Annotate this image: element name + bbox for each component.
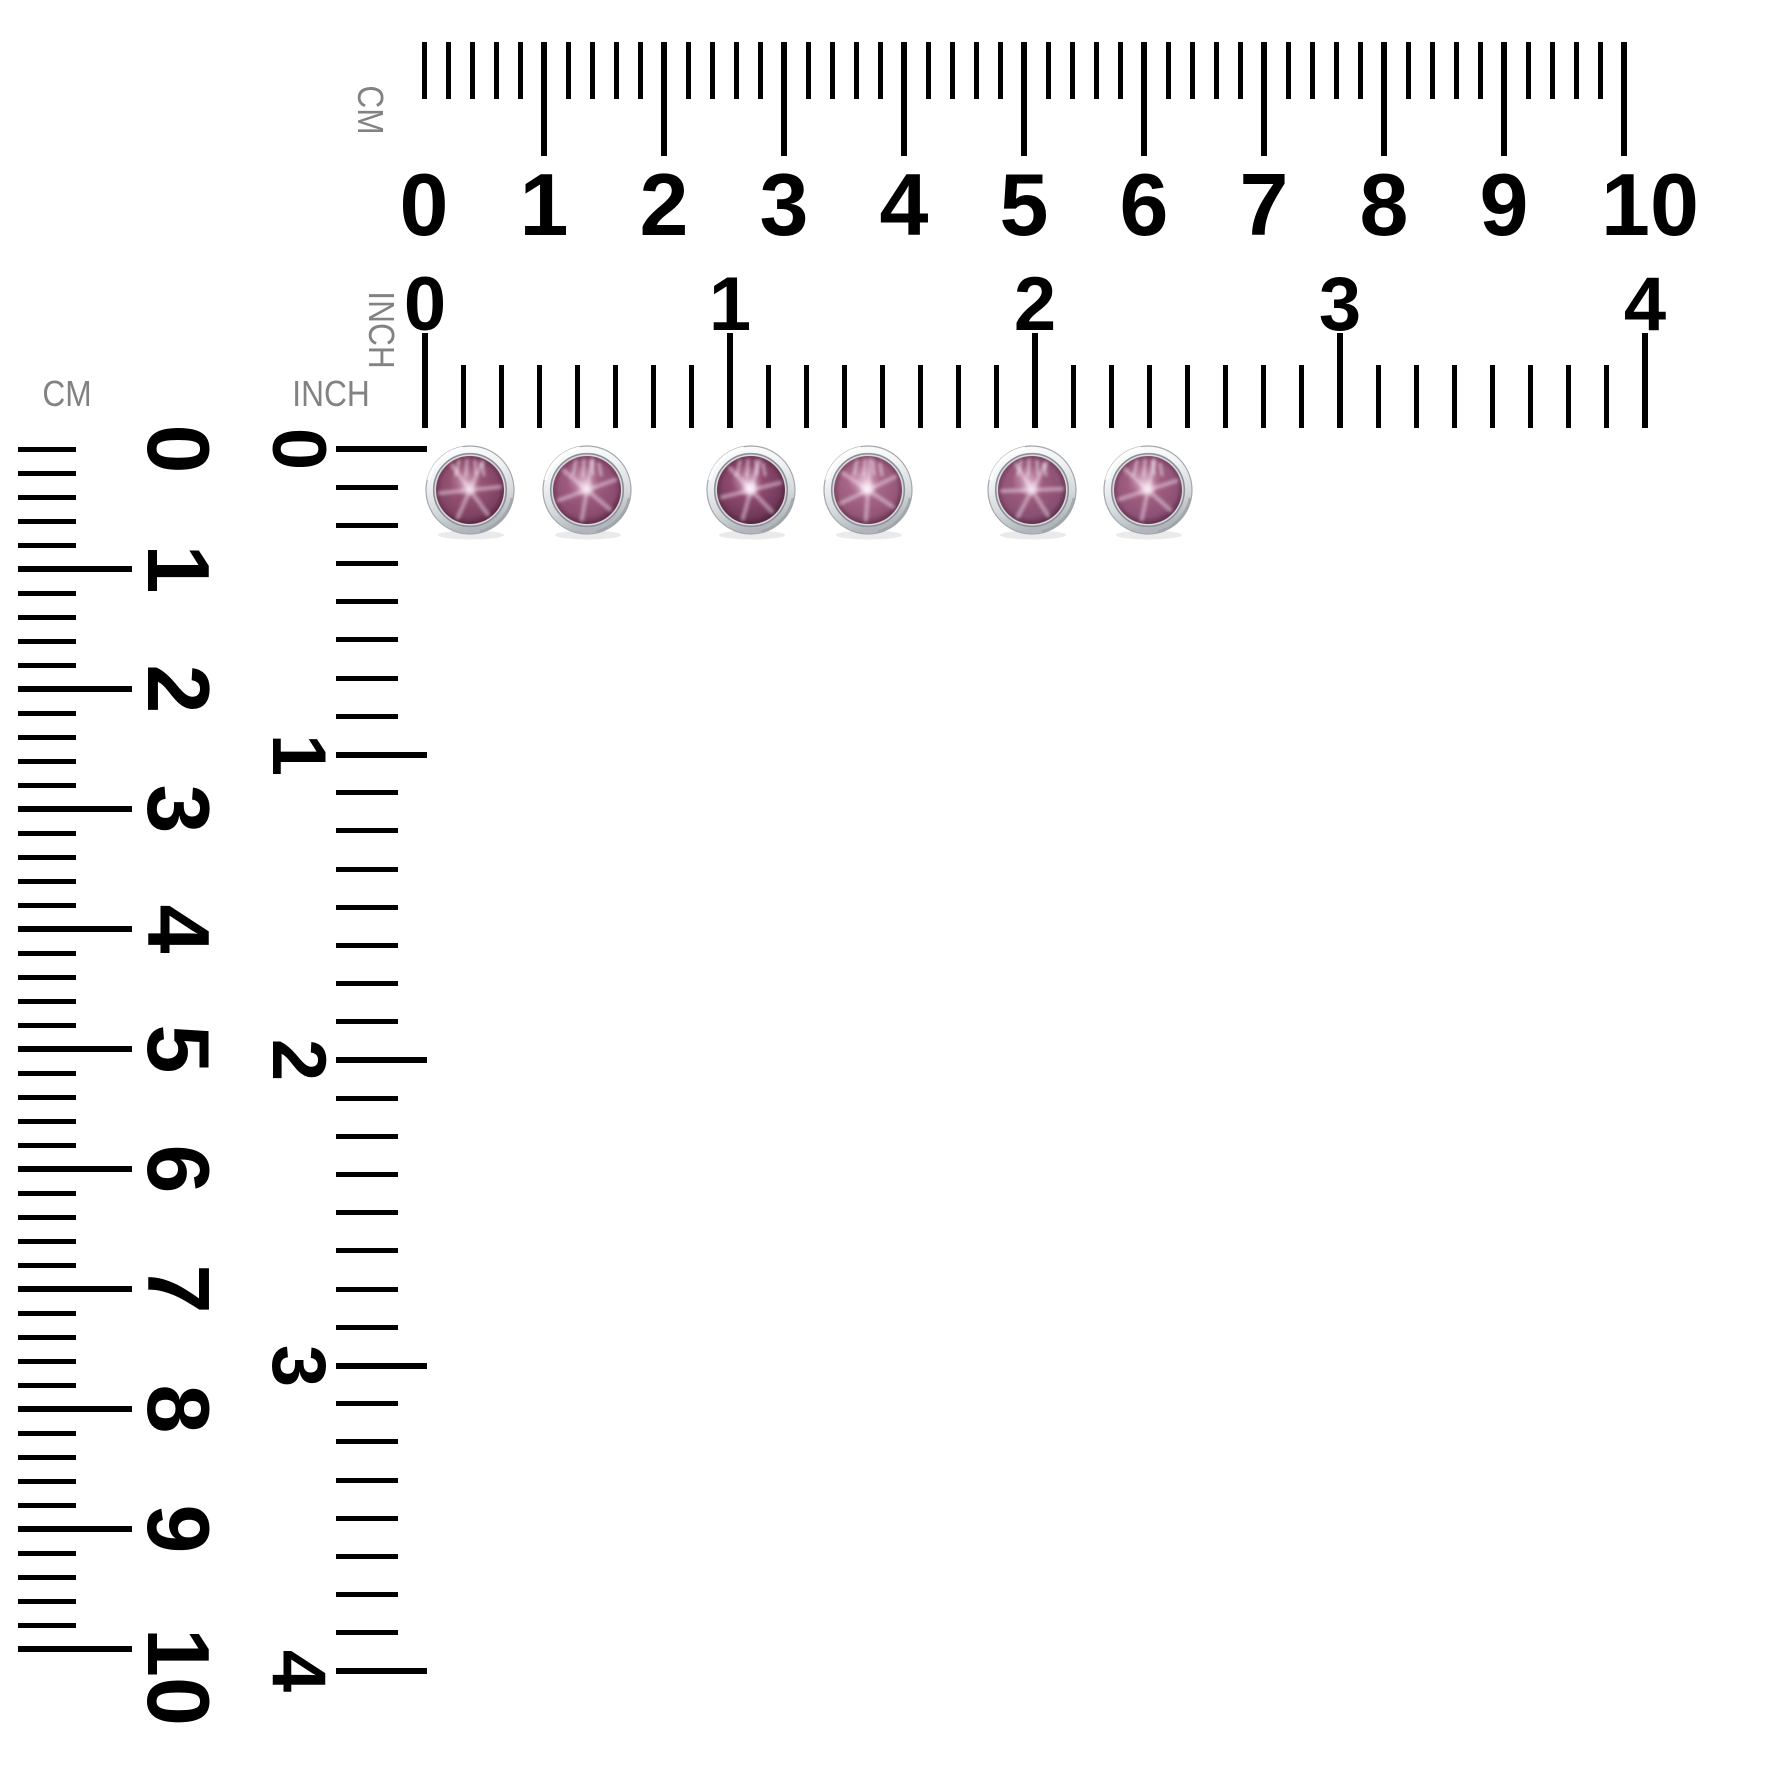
top-cm-number: 7: [1240, 161, 1289, 249]
left-inch-number: 1: [260, 733, 336, 775]
top-inch-major-tick: [1337, 333, 1343, 428]
top-cm-number: 9: [1480, 161, 1529, 249]
left-inch-minor-tick: [336, 1630, 398, 1635]
top-inch-minor-tick: [1566, 365, 1571, 428]
left-inch-minor-tick: [336, 599, 398, 604]
left-inch-major-tick: [336, 1668, 427, 1674]
top-inch-major-tick: [422, 333, 428, 428]
star-center-glow: [463, 482, 476, 495]
top-cm-minor-tick: [1166, 42, 1171, 99]
top-inch-number: 4: [1624, 267, 1666, 343]
top-inch-minor-tick: [613, 365, 618, 428]
left-cm-minor-tick: [18, 1215, 76, 1220]
earring-stud: [982, 440, 1082, 540]
top-cm-number: 3: [760, 161, 809, 249]
top-inch-number: 2: [1014, 267, 1056, 343]
top-inch-number: 1: [709, 267, 751, 343]
top-cm-minor-tick: [1334, 42, 1339, 99]
top-inch-minor-tick: [766, 365, 771, 428]
top-cm-minor-tick: [1070, 42, 1075, 99]
top-cm-number: 5: [1000, 161, 1049, 249]
left-cm-minor-tick: [18, 471, 76, 476]
left-cm-minor-tick: [18, 1431, 76, 1436]
left-inch-minor-tick: [336, 790, 398, 795]
top-inch-minor-tick: [1147, 365, 1152, 428]
left-inch-minor-tick: [336, 523, 398, 528]
left-cm-major-tick: [18, 1646, 132, 1652]
left-cm-number: 7: [134, 1265, 222, 1314]
top-cm-minor-tick: [998, 42, 1003, 99]
left-cm-number: 8: [134, 1385, 222, 1434]
left-inch-minor-tick: [336, 905, 398, 910]
left-cm-minor-tick: [18, 735, 76, 740]
left-cm-minor-tick: [18, 975, 76, 980]
top-cm-minor-tick: [830, 42, 835, 99]
top-inch-minor-tick: [804, 365, 809, 428]
left-cm-minor-tick: [18, 1071, 76, 1076]
top-inch-minor-tick: [1299, 365, 1304, 428]
left-inch-major-tick: [336, 1057, 427, 1063]
top-inch-unit-label: INCH: [363, 291, 399, 368]
top-inch-minor-tick: [1223, 365, 1228, 428]
left-cm-minor-tick: [18, 1383, 76, 1388]
top-cm-minor-tick: [854, 42, 859, 99]
top-cm-minor-tick: [566, 42, 571, 99]
top-inch-minor-tick: [1528, 365, 1533, 428]
left-inch-major-tick: [336, 752, 427, 758]
left-inch-minor-tick: [336, 1439, 398, 1444]
left-cm-major-tick: [18, 1046, 132, 1052]
top-cm-minor-tick: [1598, 42, 1603, 99]
top-inch-minor-tick: [1414, 365, 1419, 428]
top-inch-number: 0: [404, 267, 446, 343]
top-cm-number: 6: [1120, 161, 1169, 249]
top-cm-major-tick: [1021, 42, 1027, 156]
left-cm-major-tick: [18, 1526, 132, 1532]
star-center-glow: [580, 482, 593, 495]
top-cm-minor-tick: [1118, 42, 1123, 99]
left-cm-minor-tick: [18, 615, 76, 620]
left-cm-minor-tick: [18, 879, 76, 884]
left-cm-minor-tick: [18, 1359, 76, 1364]
top-cm-minor-tick: [1094, 42, 1099, 99]
top-cm-minor-tick: [758, 42, 763, 99]
top-cm-minor-tick: [1454, 42, 1459, 99]
left-cm-minor-tick: [18, 591, 76, 596]
top-cm-minor-tick: [806, 42, 811, 99]
left-cm-minor-tick: [18, 543, 76, 548]
left-cm-unit-label: CM: [42, 376, 91, 412]
top-cm-minor-tick: [974, 42, 979, 99]
top-inch-number: 3: [1319, 267, 1361, 343]
top-cm-major-tick: [541, 42, 547, 156]
top-cm-minor-tick: [878, 42, 883, 99]
top-inch-minor-tick: [1261, 365, 1266, 428]
left-cm-minor-tick: [18, 1023, 76, 1028]
left-inch-minor-tick: [336, 1019, 398, 1024]
top-inch-minor-tick: [1490, 365, 1495, 428]
left-inch-number: 2: [260, 1039, 336, 1081]
top-cm-minor-tick: [710, 42, 715, 99]
left-inch-unit-label: INCH: [292, 376, 369, 412]
left-cm-number: 10: [134, 1628, 222, 1726]
left-cm-number: 2: [134, 665, 222, 714]
left-cm-minor-tick: [18, 1239, 76, 1244]
left-cm-minor-tick: [18, 1551, 76, 1556]
left-cm-major-tick: [18, 566, 132, 572]
left-inch-major-tick: [336, 446, 427, 452]
top-inch-minor-tick: [689, 365, 694, 428]
left-inch-number: 3: [260, 1344, 336, 1386]
top-cm-major-tick: [901, 42, 907, 156]
left-inch-minor-tick: [336, 1210, 398, 1215]
top-cm-minor-tick: [1046, 42, 1051, 99]
top-cm-minor-tick: [1238, 42, 1243, 99]
left-cm-major-tick: [18, 1166, 132, 1172]
left-cm-minor-tick: [18, 447, 76, 452]
left-inch-minor-tick: [336, 714, 398, 719]
left-cm-minor-tick: [18, 999, 76, 1004]
top-cm-minor-tick: [494, 42, 499, 99]
top-cm-minor-tick: [686, 42, 691, 99]
top-inch-minor-tick: [1185, 365, 1190, 428]
left-inch-minor-tick: [336, 867, 398, 872]
top-cm-major-tick: [1621, 42, 1627, 156]
earring-stud: [537, 440, 637, 540]
left-cm-minor-tick: [18, 1599, 76, 1604]
top-cm-major-tick: [1141, 42, 1147, 156]
top-inch-minor-tick: [880, 365, 885, 428]
star-center-glow: [744, 482, 757, 495]
left-cm-minor-tick: [18, 1623, 76, 1628]
top-cm-number: 10: [1601, 161, 1699, 249]
left-cm-number: 1: [134, 545, 222, 594]
top-cm-unit-label: CM: [352, 85, 388, 134]
top-inch-minor-tick: [499, 365, 504, 428]
top-cm-minor-tick: [1478, 42, 1483, 99]
top-inch-major-tick: [1032, 333, 1038, 428]
top-inch-minor-tick: [1604, 365, 1609, 428]
left-inch-minor-tick: [336, 561, 398, 566]
left-inch-minor-tick: [336, 1554, 398, 1559]
left-cm-minor-tick: [18, 1311, 76, 1316]
top-cm-major-tick: [661, 42, 667, 156]
left-cm-minor-tick: [18, 831, 76, 836]
top-cm-minor-tick: [1574, 42, 1579, 99]
top-cm-minor-tick: [1430, 42, 1435, 99]
top-inch-minor-tick: [956, 365, 961, 428]
left-inch-minor-tick: [336, 1401, 398, 1406]
left-inch-minor-tick: [336, 828, 398, 833]
left-cm-minor-tick: [18, 639, 76, 644]
top-cm-number: 2: [640, 161, 689, 249]
left-cm-minor-tick: [18, 495, 76, 500]
left-cm-minor-tick: [18, 1503, 76, 1508]
top-cm-minor-tick: [1406, 42, 1411, 99]
left-cm-minor-tick: [18, 1575, 76, 1580]
star-center-glow: [1141, 482, 1154, 495]
left-cm-major-tick: [18, 686, 132, 692]
top-inch-minor-tick: [994, 365, 999, 428]
left-cm-number: 3: [134, 785, 222, 834]
left-cm-major-tick: [18, 1286, 132, 1292]
left-inch-minor-tick: [336, 1172, 398, 1177]
left-cm-minor-tick: [18, 1191, 76, 1196]
top-cm-minor-tick: [518, 42, 523, 99]
star-center-glow: [1025, 482, 1038, 495]
left-cm-minor-tick: [18, 759, 76, 764]
top-inch-major-tick: [727, 333, 733, 428]
left-cm-minor-tick: [18, 1335, 76, 1340]
top-cm-minor-tick: [590, 42, 595, 99]
top-inch-minor-tick: [1071, 365, 1076, 428]
top-cm-number: 8: [1360, 161, 1409, 249]
left-cm-minor-tick: [18, 783, 76, 788]
left-inch-major-tick: [336, 1363, 427, 1369]
left-inch-minor-tick: [336, 1248, 398, 1253]
left-cm-major-tick: [18, 806, 132, 812]
left-inch-minor-tick: [336, 981, 398, 986]
left-cm-minor-tick: [18, 519, 76, 524]
top-cm-number: 0: [400, 161, 449, 249]
left-cm-major-tick: [18, 926, 132, 932]
top-cm-major-tick: [1381, 42, 1387, 156]
left-cm-number: 4: [134, 905, 222, 954]
top-cm-minor-tick: [1190, 42, 1195, 99]
left-inch-minor-tick: [336, 637, 398, 642]
left-cm-minor-tick: [18, 1263, 76, 1268]
top-cm-minor-tick: [422, 42, 427, 99]
left-cm-major-tick: [18, 1406, 132, 1412]
earring-stud: [818, 440, 918, 540]
left-inch-minor-tick: [336, 1096, 398, 1101]
top-cm-number: 1: [520, 161, 569, 249]
left-inch-minor-tick: [336, 943, 398, 948]
top-cm-minor-tick: [1358, 42, 1363, 99]
top-cm-minor-tick: [1526, 42, 1531, 99]
left-inch-number: 0: [260, 428, 336, 470]
left-inch-minor-tick: [336, 1134, 398, 1139]
top-cm-major-tick: [781, 42, 787, 156]
left-inch-minor-tick: [336, 1325, 398, 1330]
top-cm-number: 4: [880, 161, 929, 249]
left-inch-minor-tick: [336, 676, 398, 681]
top-cm-major-tick: [1501, 42, 1507, 156]
left-inch-number: 4: [260, 1650, 336, 1692]
left-cm-minor-tick: [18, 1119, 76, 1124]
top-cm-minor-tick: [446, 42, 451, 99]
left-cm-number: 5: [134, 1025, 222, 1074]
left-cm-number: 9: [134, 1505, 222, 1554]
top-inch-minor-tick: [575, 365, 580, 428]
left-cm-minor-tick: [18, 711, 76, 716]
top-cm-minor-tick: [1550, 42, 1555, 99]
left-cm-minor-tick: [18, 951, 76, 956]
earring-stud: [701, 440, 801, 540]
left-inch-minor-tick: [336, 1516, 398, 1521]
top-cm-minor-tick: [1214, 42, 1219, 99]
top-cm-minor-tick: [614, 42, 619, 99]
left-cm-minor-tick: [18, 903, 76, 908]
top-inch-minor-tick: [651, 365, 656, 428]
top-cm-minor-tick: [470, 42, 475, 99]
left-cm-minor-tick: [18, 1479, 76, 1484]
left-inch-minor-tick: [336, 1287, 398, 1292]
top-cm-minor-tick: [734, 42, 739, 99]
top-cm-minor-tick: [1286, 42, 1291, 99]
earring-stud: [1098, 440, 1198, 540]
left-cm-minor-tick: [18, 1143, 76, 1148]
earring-stud: [420, 440, 520, 540]
left-cm-minor-tick: [18, 1095, 76, 1100]
top-cm-minor-tick: [1310, 42, 1315, 99]
left-inch-minor-tick: [336, 485, 398, 490]
left-inch-minor-tick: [336, 1592, 398, 1597]
top-inch-major-tick: [1642, 333, 1648, 428]
top-inch-minor-tick: [1452, 365, 1457, 428]
left-cm-minor-tick: [18, 663, 76, 668]
measurement-board: 012345678910 01234 012345678910 01234 CM…: [0, 0, 1772, 1772]
top-cm-minor-tick: [950, 42, 955, 99]
top-cm-minor-tick: [926, 42, 931, 99]
top-inch-minor-tick: [461, 365, 466, 428]
left-cm-minor-tick: [18, 1455, 76, 1460]
left-cm-minor-tick: [18, 855, 76, 860]
top-inch-minor-tick: [918, 365, 923, 428]
top-cm-minor-tick: [638, 42, 643, 99]
left-inch-minor-tick: [336, 1478, 398, 1483]
star-center-glow: [861, 482, 874, 495]
top-inch-minor-tick: [1376, 365, 1381, 428]
top-inch-minor-tick: [1109, 365, 1114, 428]
top-inch-minor-tick: [842, 365, 847, 428]
left-cm-number: 0: [134, 425, 222, 474]
top-cm-major-tick: [1261, 42, 1267, 156]
left-cm-number: 6: [134, 1145, 222, 1194]
top-inch-minor-tick: [537, 365, 542, 428]
